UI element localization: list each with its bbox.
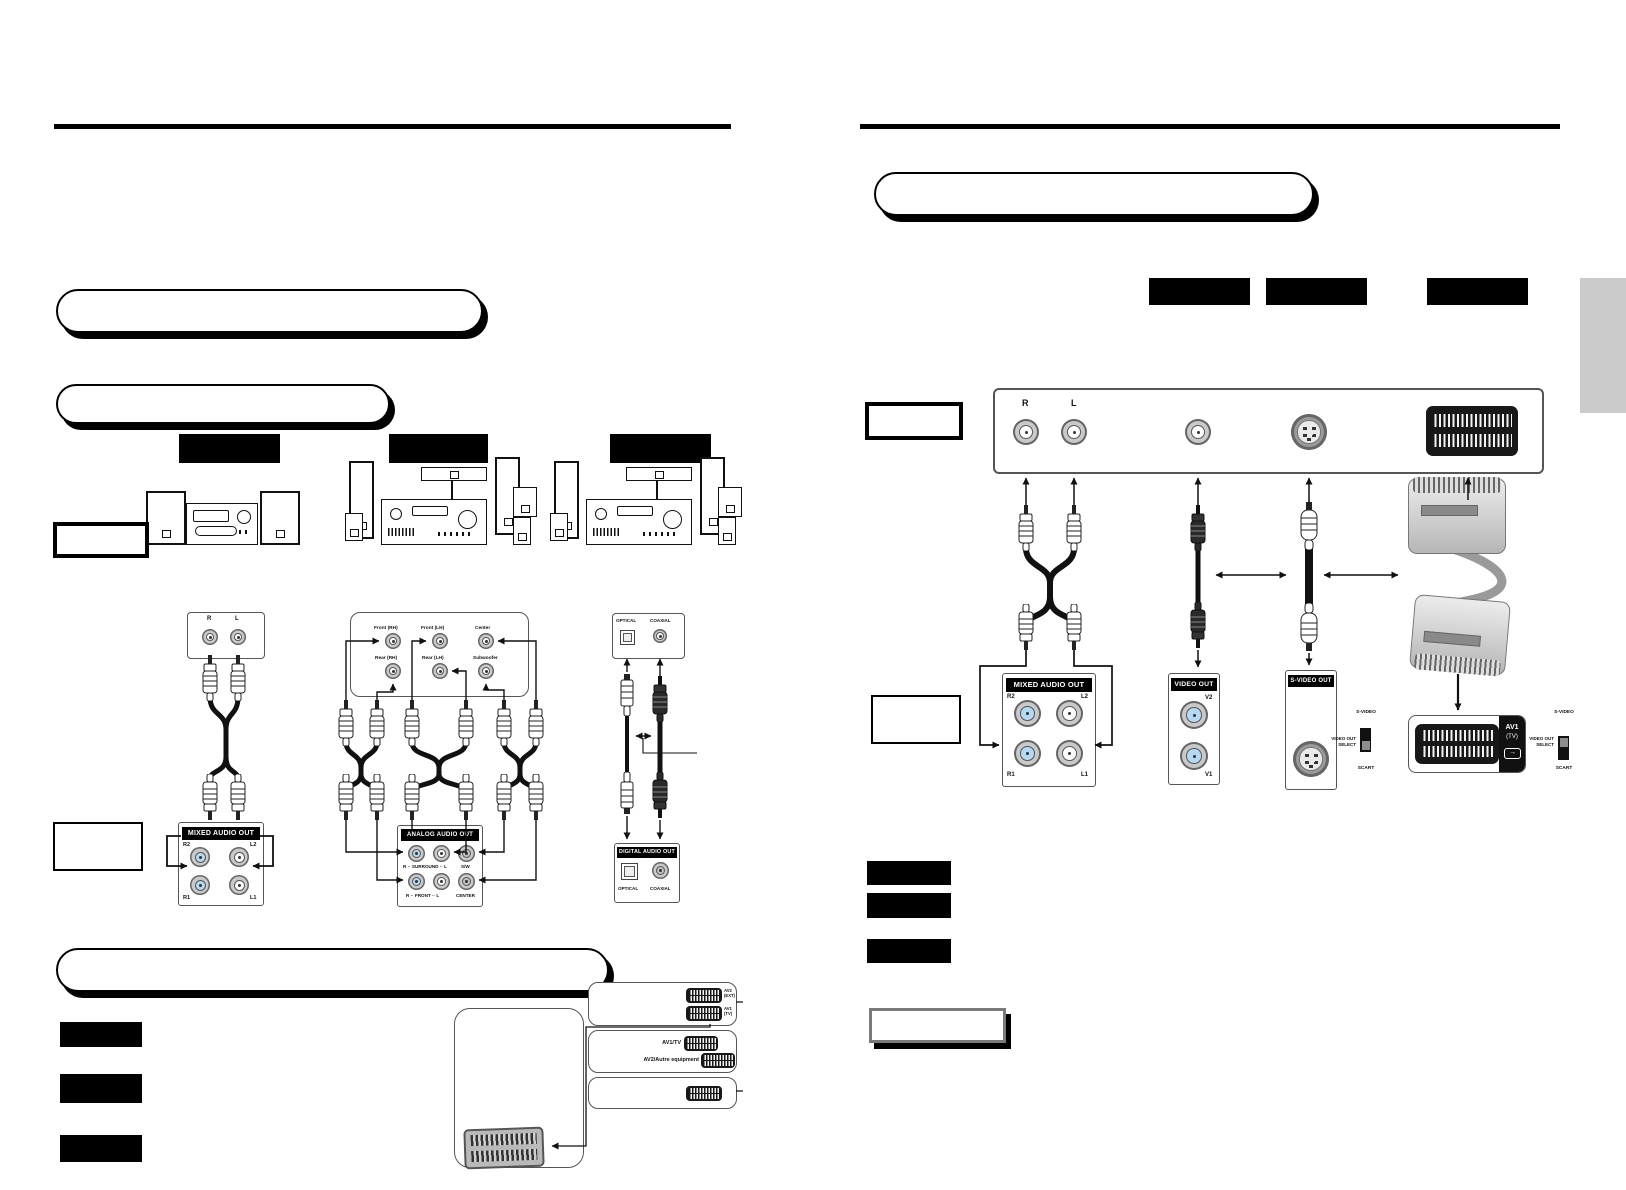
erased-reference-box	[869, 1008, 1006, 1043]
jack-center	[458, 873, 475, 890]
jack-label-r2: R2	[183, 842, 190, 848]
amp-front-rh-label: Front (RH)	[374, 626, 398, 631]
jack-front-r	[408, 873, 425, 890]
jack-l2	[1056, 700, 1083, 727]
amp-front-lh-label: Front (LH)	[421, 626, 444, 631]
switch1-select-label: SELECT	[1326, 742, 1356, 747]
av1-tv-slash-label: AV1/TV	[633, 1040, 681, 1046]
panel-s-video-jack	[1291, 414, 1327, 450]
digital-coaxial-jack	[652, 862, 669, 879]
right-section-title-pill	[874, 172, 1314, 216]
jack-label-r2: R2	[1007, 694, 1015, 700]
amp-jack-front-rh	[385, 633, 401, 649]
jack-l2	[229, 847, 249, 867]
center-label: CENTER	[456, 893, 475, 898]
av1-tv-panel: AV1 (TV) →	[1408, 715, 1526, 773]
erased-caption-box-3	[865, 402, 963, 440]
speaker-right	[260, 491, 300, 545]
scart-sockets-box-1: AV2 (EXT) AV1 (TV)	[588, 982, 737, 1026]
right-page-top-rule	[860, 124, 1560, 129]
mixed-audio-out-panel-right: MIXED AUDIO OUT R2 L2 R1 L1	[1002, 673, 1096, 787]
erased-caption-box-4	[871, 695, 961, 744]
redacted-note-label-6	[867, 939, 951, 963]
jack-v2	[1180, 701, 1208, 729]
stereo-jack-r	[202, 629, 218, 645]
source-coaxial-label: COAXIAL	[650, 618, 671, 623]
video-out-select-switch-2: S-VIDEO VIDEO OUT SELECT SCART	[1524, 710, 1604, 774]
source-optical-jack	[620, 630, 635, 645]
redacted-note-label-5	[867, 893, 951, 918]
jack-r2	[1014, 700, 1041, 727]
page-edge-tab	[1580, 278, 1626, 413]
scart-plug-bottom-icon	[1409, 594, 1511, 676]
analog-audio-out-panel: ANALOG AUDIO OUT R ·· SURROUND ·· L S/W …	[397, 825, 483, 907]
speaker-left	[146, 491, 186, 545]
panel-scart-socket	[1426, 406, 1518, 456]
switch1-s-video-label: S-VIDEO	[1352, 710, 1380, 715]
source-optical-label: OPTICAL	[616, 618, 636, 623]
scart-socket-extra	[686, 1086, 722, 1101]
jack-label-l2: L2	[1081, 694, 1088, 700]
analog-audio-out-title: ANALOG AUDIO OUT	[401, 829, 479, 841]
scart-plug-front-icon	[463, 1127, 544, 1170]
amp-center-label: Center	[475, 626, 490, 631]
video-out-select-switch-1: S-VIDEO VIDEO OUT SELECT SCART	[1326, 710, 1406, 774]
jack-label-l1: L1	[1081, 772, 1088, 778]
jack-sw	[458, 845, 475, 862]
panel-video-jack	[1185, 419, 1211, 445]
mini-system-unit	[186, 503, 258, 545]
scart-socket-av2-ext	[686, 988, 722, 1003]
jack-r2	[190, 847, 210, 867]
jack-r1	[1014, 740, 1041, 767]
mixed-audio-out-title-right: MIXED AUDIO OUT	[1006, 678, 1092, 692]
jack-r1	[190, 875, 210, 895]
left-section-title-pill-1	[56, 289, 483, 333]
surround-row-label: R ·· SURROUND ·· L	[403, 864, 447, 869]
switch2-s-video-label: S-VIDEO	[1550, 710, 1578, 715]
surround-system-illustration-1	[345, 455, 535, 548]
mini-stereo-system-illustration	[146, 477, 296, 545]
scanned-manual-spread: R L MIXED AUDIO OUT R2 L2 R1 L1 Front (R…	[0, 0, 1626, 1190]
stereo-jack-r-label: R	[207, 616, 211, 622]
sw-label: S/W	[461, 864, 470, 869]
stereo-jack-l	[230, 629, 246, 645]
jack-label-v1: V1	[1205, 772, 1212, 778]
video-out-panel: VIDEO OUT V2 V1	[1168, 673, 1220, 785]
av1-scart-socket	[1415, 724, 1499, 764]
left-page-top-rule	[54, 124, 731, 129]
digital-coaxial-label: COAXIAL	[650, 886, 671, 891]
jack-label-l1: L1	[250, 895, 256, 901]
redacted-note-label-4	[867, 861, 951, 885]
switch2-video-out-label: VIDEO OUT	[1524, 736, 1554, 741]
redacted-note-label-1	[60, 1022, 142, 1047]
jack-front-l	[433, 873, 450, 890]
scart-sockets-box-2: AV1/TV AV2/Autre equipment	[588, 1030, 737, 1073]
redacted-connector-label-3	[1427, 278, 1528, 305]
av2-ext-label: AV2 (EXT)	[724, 989, 736, 998]
redacted-connector-label-1	[1149, 278, 1250, 305]
jack-surround-l	[433, 845, 450, 862]
scart-socket-tv	[684, 1036, 718, 1051]
jack-label-r1: R1	[1007, 772, 1015, 778]
video-out-title: VIDEO OUT	[1171, 678, 1217, 691]
scart-socket-av1-tv	[686, 1006, 722, 1021]
panel-audio-r-jack	[1013, 419, 1039, 445]
redacted-note-label-3	[60, 1135, 142, 1162]
scart-socket-other	[701, 1053, 735, 1068]
surround-amp-input-box	[350, 612, 529, 697]
left-section-title-pill-2	[56, 384, 390, 424]
switch1-scart-label: SCART	[1352, 766, 1380, 771]
redacted-method-label-1	[179, 434, 280, 463]
jack-surround-r	[408, 845, 425, 862]
amp-subwoofer-label: Subwoofer	[473, 656, 498, 661]
panel-audio-l-jack	[1061, 419, 1087, 445]
av1-sub: (TV)	[1499, 734, 1525, 740]
stereo-input-box	[187, 612, 265, 659]
digital-optical-jack	[621, 863, 638, 880]
digital-audio-out-panel: DIGITAL AUDIO OUT OPTICAL COAXIAL	[614, 843, 680, 903]
erased-caption-box-2	[53, 822, 143, 871]
jack-label-v2: V2	[1205, 695, 1212, 701]
redacted-note-label-2	[60, 1074, 142, 1103]
source-coaxial-jack	[653, 629, 667, 643]
stereo-jack-l-label: L	[235, 616, 239, 622]
jack-v1	[1180, 742, 1208, 770]
s-video-out-title: S-VIDEO OUT	[1288, 675, 1334, 687]
surround-system-illustration-2	[550, 455, 740, 548]
switch1-video-out-label: VIDEO OUT	[1326, 736, 1356, 741]
amp-jack-front-lh	[432, 633, 448, 649]
av1-label-block: AV1 (TV) →	[1499, 716, 1525, 772]
amp-jack-rear-lh	[432, 663, 448, 679]
digital-audio-out-title: DIGITAL AUDIO OUT	[617, 847, 677, 858]
scart-output-icon: →	[1504, 748, 1521, 759]
amp-rear-lh-label: Rear (LH)	[422, 656, 444, 661]
jack-l1	[1056, 740, 1083, 767]
amp-rear-rh-label: Rear (RH)	[375, 656, 397, 661]
switch2-knob	[1558, 736, 1569, 760]
scart-sockets-box-3	[588, 1077, 737, 1109]
arrow-linework	[0, 0, 1626, 1190]
front-row-label: R ·· FRONT ·· L	[406, 893, 439, 898]
left-section-title-pill-3	[56, 948, 609, 992]
panel-l-label: L	[1071, 398, 1077, 408]
switch1-knob	[1360, 728, 1371, 752]
scart-plug-top-icon	[1408, 478, 1506, 554]
s-video-out-jack	[1293, 741, 1329, 777]
panel-r-label: R	[1022, 398, 1029, 408]
erased-caption-box-1	[53, 522, 149, 558]
mixed-audio-out-title-left: MIXED AUDIO OUT	[182, 827, 260, 840]
jack-label-r1: R1	[183, 895, 190, 901]
amp-jack-center	[478, 633, 494, 649]
amp-jack-subwoofer	[478, 663, 494, 679]
av1-name: AV1	[1499, 724, 1525, 731]
mixed-audio-out-panel-left: MIXED AUDIO OUT R2 L2 R1 L1	[178, 822, 264, 906]
amp-jack-rear-rh	[385, 663, 401, 679]
switch2-scart-label: SCART	[1550, 766, 1578, 771]
cable-linework	[0, 0, 1626, 1190]
digital-optical-label: OPTICAL	[618, 886, 638, 891]
av2-other-label: AV2/Autre equipment	[613, 1057, 699, 1063]
av1-tv-label: AV1 (TV)	[724, 1007, 736, 1016]
redacted-connector-label-2	[1266, 278, 1367, 305]
jack-l1	[229, 875, 249, 895]
jack-label-l2: L2	[250, 842, 256, 848]
switch2-select-label: SELECT	[1524, 742, 1554, 747]
